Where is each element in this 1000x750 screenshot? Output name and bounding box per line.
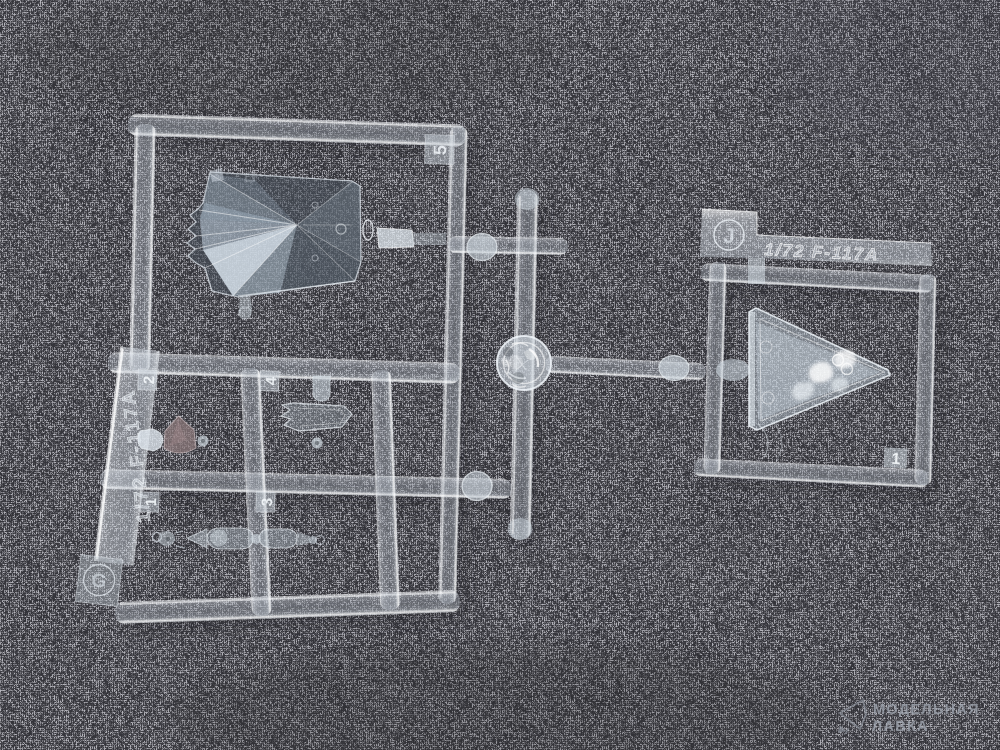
svg-text:4: 4 xyxy=(263,376,280,386)
svg-text:МОДЕЛЬНАЯ: МОДЕЛЬНАЯ xyxy=(873,702,980,718)
svg-text:G: G xyxy=(90,570,107,593)
svg-text:J: J xyxy=(723,225,735,248)
svg-text:3: 3 xyxy=(259,498,276,507)
svg-text:1: 1 xyxy=(891,451,901,468)
svg-text:1: 1 xyxy=(143,498,160,507)
svg-text:5: 5 xyxy=(430,145,450,156)
svg-text:2: 2 xyxy=(141,376,158,385)
svg-text:ЛАВКА: ЛАВКА xyxy=(872,719,929,735)
